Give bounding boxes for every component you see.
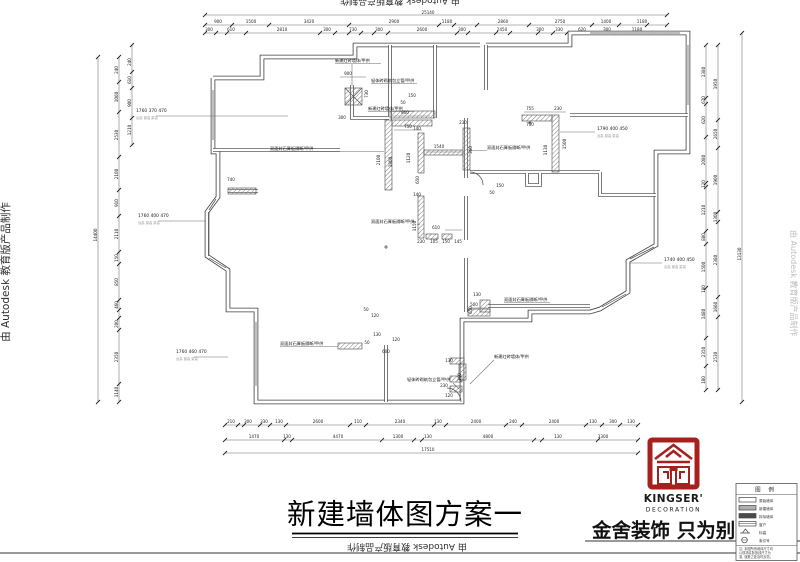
dim-bottom: 1470	[249, 434, 260, 439]
dim-inner: 50	[363, 307, 369, 312]
dim-bottom: 130	[424, 434, 432, 439]
legend-swatch-demolish	[739, 514, 756, 519]
dim-top: 2810	[277, 27, 288, 32]
callout-leaders	[156, 116, 662, 357]
legend-label-index: 索引号	[759, 538, 770, 543]
dim-right: 180	[701, 376, 706, 384]
dim-right: 13130	[737, 247, 742, 260]
hatch-wall	[390, 111, 435, 118]
dim-left: 610	[127, 76, 132, 84]
dims-left: 1440024010602530210091021101508504602002…	[93, 58, 132, 398]
dim-right: 2080	[701, 154, 706, 165]
sheet-title: 新建墙体图方案一	[287, 498, 523, 531]
dim-inner: 50	[400, 100, 406, 105]
dim-inner: 755	[526, 106, 534, 111]
interior-walls	[213, 45, 688, 402]
dim-left: 2100	[114, 168, 119, 179]
dim-left: 200	[114, 320, 119, 328]
outer-walls	[207, 33, 688, 402]
hatch-wall	[338, 343, 362, 349]
wall-label: 双面封石膏板隔断/甲供	[280, 340, 323, 347]
dim-top: 2450	[497, 27, 508, 32]
dim-inner: 105	[430, 239, 438, 244]
dim-inner: 740	[227, 177, 235, 182]
legend-note-line3: 准, 误差之处及时反馈。	[739, 554, 773, 559]
dim-top: 1180	[632, 27, 643, 32]
dim-top: 620	[578, 27, 586, 32]
dim-bottom: 240	[509, 419, 517, 424]
legend-label-demolish: 拆除墙体	[759, 514, 774, 519]
dim-bottom: 130	[627, 419, 635, 424]
dim-bottom: 4470	[333, 434, 344, 439]
dim-inner: 130	[445, 358, 453, 363]
dim-left: 910	[114, 199, 119, 207]
dim-left: 1210	[127, 124, 132, 135]
dim-bottom: 2340	[395, 419, 406, 424]
legend-label-original: 原始墙体	[759, 498, 774, 503]
dim-bottom: 210	[227, 419, 235, 424]
plan-marker-circle	[385, 246, 387, 248]
callout-subtext: 台高 窗高 梁高	[597, 133, 620, 138]
dim-right: 1660	[713, 301, 718, 312]
drawing-sheet: 由 Autodesk 教育版产品制作 由 Autodesk 教育版产品制作 由 …	[0, 0, 800, 562]
dim-right: 2530	[713, 351, 718, 362]
hatch-wall	[552, 115, 559, 172]
watermark-bottom: 由 Autodesk 教育版产品制作	[347, 541, 467, 553]
dim-bottom: 130	[283, 434, 291, 439]
dim-inner: 120	[371, 313, 379, 318]
dim-left: 900	[127, 99, 132, 107]
floor-plan-svg: 由 Autodesk 教育版产品制作 由 Autodesk 教育版产品制作 由 …	[0, 0, 800, 562]
dim-inner: 1130	[543, 144, 548, 155]
wall-label: 双面封石膏板隔断/甲供	[371, 218, 414, 225]
dim-top: 25140	[421, 10, 434, 15]
callout-number: 1740 400 450	[664, 257, 695, 263]
dim-bottom: 17510	[421, 447, 434, 452]
wall-label: 双面封石膏板隔断/甲供	[487, 144, 530, 151]
hatch-wall	[424, 150, 463, 155]
dim-top: 2600	[417, 27, 428, 32]
dim-inner: 600	[382, 349, 390, 354]
dim-top: 330	[555, 27, 563, 32]
dim-inner: 750	[526, 122, 534, 127]
brand-name: KINGSER'	[644, 493, 703, 505]
dim-inner: 360	[457, 373, 462, 381]
outer-wall-dark	[207, 33, 688, 402]
interior-wall-white	[213, 45, 688, 402]
dim-right: 620	[701, 116, 706, 124]
dim-inner: 150	[442, 239, 450, 244]
wall-label: 新建红砖墙体/甲供	[368, 105, 403, 112]
callout-number: 1760 400 470	[138, 213, 169, 219]
dim-top: 2860	[498, 19, 509, 24]
hatch-wall	[480, 300, 490, 312]
dim-top: 1400	[601, 19, 612, 24]
dim-bottom: 330	[260, 419, 268, 424]
dim-left: 2350	[114, 351, 119, 362]
dim-right: 120	[701, 180, 706, 188]
legend-swatch-new	[739, 506, 756, 511]
dim-top: 1180	[637, 19, 648, 24]
dim-bottom: 1300	[393, 434, 404, 439]
dim-inner: 1800	[388, 156, 393, 167]
callout-number: 1760 460 470	[176, 349, 207, 355]
dims-bottom: 2103003301302600110234013024002402400130…	[227, 419, 635, 452]
dim-inner: 750	[404, 124, 412, 129]
dim-left: 150	[114, 254, 119, 262]
interior-wall-dark	[213, 45, 688, 402]
dim-inner: 1120	[406, 152, 411, 163]
legend-header: 图 例	[755, 486, 777, 494]
wall-label: 轻体砖砌筑包立管/甲供	[371, 77, 414, 84]
dim-inner: 300	[338, 115, 346, 120]
dim-top: 730	[349, 27, 357, 32]
hatch-wall	[522, 115, 552, 121]
wall-label: 新建红砖墙体/甲供	[335, 57, 370, 64]
dim-right: 2380	[713, 254, 718, 265]
dim-inner: 50	[489, 190, 495, 195]
brand-sub: DECORATION	[646, 507, 702, 514]
watermark-right: 由 Autodesk 教育版产品制作	[789, 230, 799, 336]
dim-inner: 140	[413, 126, 421, 131]
wall-labels: 新建红砖墙体/甲供轻体砖砌筑包立管/甲供新建红砖墙体/甲供双面封石膏板隔断/甲供…	[270, 57, 547, 383]
window-lines	[209, 33, 689, 386]
dim-inner: 1500	[562, 138, 567, 149]
dim-inner: 650	[415, 176, 420, 184]
dim-bottom: 300	[609, 419, 617, 424]
dim-inner: 145	[454, 239, 462, 244]
watermark-top: 由 Autodesk 教育版产品制作	[340, 0, 460, 7]
callout-subtext: 台高 窗高 梁高	[176, 356, 199, 361]
dim-bottom: 2400	[549, 419, 560, 424]
dim-inner: 130	[473, 292, 481, 297]
dim-top: 300	[205, 27, 213, 32]
dim-inner: 120	[445, 393, 453, 398]
dim-bottom: 2400	[471, 419, 482, 424]
dim-left: 850	[114, 278, 119, 286]
dim-inner: 610	[432, 225, 440, 230]
dim-top: 2900	[389, 19, 400, 24]
dim-top: 300	[603, 27, 611, 32]
new-wall-hatches	[228, 88, 559, 392]
dim-bottom: 130	[589, 419, 597, 424]
callout-subtext: 台高 窗高 梁高	[136, 115, 159, 120]
window-mid-path	[209, 33, 689, 386]
dim-inner: 650	[468, 306, 473, 314]
dim-inner: 150	[496, 183, 504, 188]
dim-top: 610	[227, 27, 235, 32]
dim-right: 1900	[713, 174, 718, 185]
dim-top: 300	[458, 27, 466, 32]
dim-bottom: 2600	[313, 419, 324, 424]
dim-inner: 360	[468, 146, 473, 154]
hatch-wall	[385, 120, 392, 190]
dim-left: 1060	[114, 91, 119, 102]
legend-label-window: 窗户	[759, 522, 767, 527]
hatch-wall	[418, 133, 424, 173]
dim-inner: 50	[364, 340, 370, 345]
dim-bottom: 130	[275, 419, 283, 424]
dims-top: 2514090015003420290011802860275014001180…	[205, 10, 648, 32]
callout-number: 1760 370 470	[136, 108, 167, 114]
dim-left: 14400	[93, 228, 98, 241]
dim-left: 240	[114, 66, 119, 74]
wall-label: 轻体砖砌筑包立管/甲供	[407, 376, 450, 383]
dim-inner: 900	[344, 71, 352, 76]
dim-right: 1950	[713, 78, 718, 89]
dim-top: 1180	[442, 19, 453, 24]
dim-top: 900	[214, 19, 222, 24]
dim-inner: 230	[417, 239, 425, 244]
dim-top: 2750	[555, 19, 566, 24]
legend-label-elevation: 标高	[759, 530, 767, 535]
dim-right: 1380	[701, 66, 706, 77]
dim-right: 1480	[701, 308, 706, 319]
outer-wall-white	[207, 33, 688, 402]
dim-inner: 230	[554, 106, 562, 111]
dim-inner: 120	[392, 337, 400, 342]
wall-label: 双面封石膏板隔断/甲供	[270, 145, 313, 152]
wall-label: 双面封石膏板隔断/甲供	[504, 296, 547, 303]
dim-inner: 150	[408, 93, 416, 98]
dim-bottom: 300	[244, 419, 252, 424]
dim-inner: 230	[459, 120, 467, 125]
callout-number: 1790 400 450	[597, 126, 628, 132]
dim-right: 1210	[701, 204, 706, 215]
dim-top: 300	[323, 27, 331, 32]
dim-right: 2350	[701, 346, 706, 357]
dim-top: 300	[375, 27, 383, 32]
dim-top: 300	[536, 27, 544, 32]
dim-inner: 130	[373, 332, 381, 337]
dim-inner: 730	[364, 90, 369, 98]
hatch-wall	[418, 196, 424, 238]
dim-right: 670	[701, 96, 706, 104]
dim-bottom: 130	[434, 419, 442, 424]
callout-subtext: 台高 窗高 梁高	[664, 264, 687, 269]
dim-inner: 140	[413, 192, 421, 197]
callout-subtext: 台高 窗高 梁高	[138, 220, 161, 225]
dim-inner: 230	[440, 383, 448, 388]
hatch-wall	[392, 120, 432, 126]
dim-right: 2650	[713, 128, 718, 139]
legend-swatch-original	[739, 498, 756, 503]
dim-right: 180	[701, 285, 706, 293]
wall-label: 新建红砖墙体/甲供	[494, 353, 529, 360]
dim-right: 1500	[701, 261, 706, 272]
legend-table: 图 例 原始墙体 新建墙体 拆除墙体 窗户 标高 索引号 注: 本图所有墙体尺寸…	[736, 484, 797, 561]
dim-left: 460	[114, 301, 119, 309]
dim-bottom: 3300	[598, 434, 609, 439]
dim-bottom: 110	[354, 419, 362, 424]
dim-inner: 2100	[376, 154, 381, 165]
hatch-wall	[228, 188, 256, 194]
dim-left: 2530	[114, 129, 119, 140]
watermark-left: 由 Autodesk 教育版产品制作	[0, 202, 12, 342]
dim-top: 3420	[304, 19, 315, 24]
dim-inner: 1540	[434, 144, 445, 149]
dim-right: 1300	[713, 211, 718, 222]
dim-bottom: 4800	[483, 434, 494, 439]
dim-left: 240	[127, 58, 132, 66]
dim-top: 1500	[246, 19, 257, 24]
legend-label-new: 新建墙体	[759, 506, 774, 511]
dim-left: 2110	[114, 228, 119, 239]
dim-bottom: 130	[554, 434, 562, 439]
dim-left: 1140	[114, 386, 119, 397]
dim-right: 880	[701, 233, 706, 241]
